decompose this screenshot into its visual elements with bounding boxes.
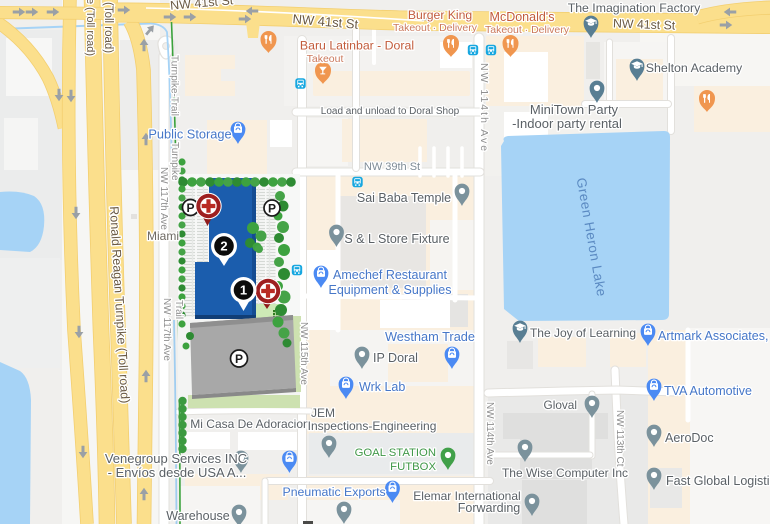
svg-text:Sai Baba Temple: Sai Baba Temple — [357, 191, 451, 205]
svg-text:e (Toll road): e (Toll road) — [84, 0, 96, 56]
svg-text:McDonald's: McDonald's — [490, 10, 555, 24]
svg-text:AeroDoc: AeroDoc — [665, 431, 714, 445]
svg-text:Shelton Academy: Shelton Academy — [646, 61, 743, 75]
svg-text:Turnpike: Turnpike — [169, 142, 180, 181]
svg-text:Amechef Restaurant: Amechef Restaurant — [333, 268, 447, 282]
svg-text:Mi Casa De Adoracion: Mi Casa De Adoracion — [190, 417, 309, 431]
svg-text:NW 114th Ave: NW 114th Ave — [478, 63, 490, 153]
svg-text:TVA Automotive: TVA Automotive — [664, 384, 752, 398]
svg-text:Trail: Trail — [173, 300, 184, 319]
svg-text:NW 117th Ave: NW 117th Ave — [158, 167, 169, 230]
svg-text:-Indoor party rental: -Indoor party rental — [512, 116, 622, 131]
svg-text:NW 117th Ave: NW 117th Ave — [161, 298, 172, 361]
svg-text:Load and unload to Doral Shop: Load and unload to Doral Shop — [321, 106, 460, 117]
svg-text:Takeout · Delivery: Takeout · Delivery — [393, 22, 478, 34]
svg-text:P: P — [186, 201, 194, 215]
svg-text:Westham Trade: Westham Trade — [385, 329, 475, 344]
svg-text:Takeout · Delivery: Takeout · Delivery — [485, 24, 570, 36]
svg-text:MiniTown Party: MiniTown Party — [530, 102, 619, 117]
svg-text:Warehouse: Warehouse — [166, 509, 230, 523]
svg-text:2: 2 — [220, 239, 227, 254]
svg-text:(Toll road): (Toll road) — [102, 2, 114, 53]
svg-text:The Wise Computer Inc: The Wise Computer Inc — [502, 466, 628, 480]
svg-text:NW 39th St: NW 39th St — [364, 161, 420, 173]
svg-text:JEM: JEM — [311, 406, 335, 420]
svg-text:P: P — [235, 352, 243, 366]
svg-text:1: 1 — [240, 283, 247, 298]
svg-text:NW 113th Ct: NW 113th Ct — [614, 410, 625, 467]
svg-text:Miami: Miami — [147, 229, 179, 243]
svg-text:IP Doral: IP Doral — [373, 351, 418, 365]
svg-text:Public Storage: Public Storage — [148, 127, 231, 142]
svg-text:Baru Latinbar - Doral: Baru Latinbar - Doral — [300, 39, 414, 53]
svg-text:The Joy of Learning: The Joy of Learning — [530, 326, 636, 340]
svg-text:Inspections-Engineering: Inspections-Engineering — [308, 419, 437, 433]
svg-text:Turnpike-Trail: Turnpike-Trail — [169, 55, 180, 116]
svg-text:FUTBOX: FUTBOX — [390, 461, 436, 473]
svg-text:Venegroup Services INC: Venegroup Services INC — [105, 451, 247, 466]
svg-text:Equipment & Supplies: Equipment & Supplies — [329, 283, 452, 297]
svg-text:S & L Store Fixture: S & L Store Fixture — [344, 232, 449, 246]
svg-text:Forwarding: Forwarding — [458, 501, 521, 515]
svg-text:- Envíos desde USA A...: - Envíos desde USA A... — [108, 465, 247, 480]
svg-text:NW 114th Ave: NW 114th Ave — [484, 402, 495, 465]
svg-text:Fast Global Logistic: Fast Global Logistic — [666, 474, 770, 488]
svg-text:Burger King: Burger King — [408, 8, 472, 22]
svg-text:The Imagination Factory: The Imagination Factory — [568, 1, 701, 15]
svg-text:NW 41st St: NW 41st St — [613, 16, 676, 32]
svg-text:Wrk Lab: Wrk Lab — [359, 380, 405, 394]
svg-text:Takeout: Takeout — [307, 53, 344, 65]
svg-text:Gloval: Gloval — [544, 398, 577, 412]
svg-text:GOAL STATION: GOAL STATION — [355, 447, 436, 459]
svg-text:Artmark Associates, I: Artmark Associates, I — [658, 329, 770, 343]
svg-text:Pneumatic Exports: Pneumatic Exports — [283, 485, 386, 499]
svg-text:NW 115th Ave: NW 115th Ave — [298, 322, 309, 385]
svg-text:P: P — [268, 201, 276, 215]
